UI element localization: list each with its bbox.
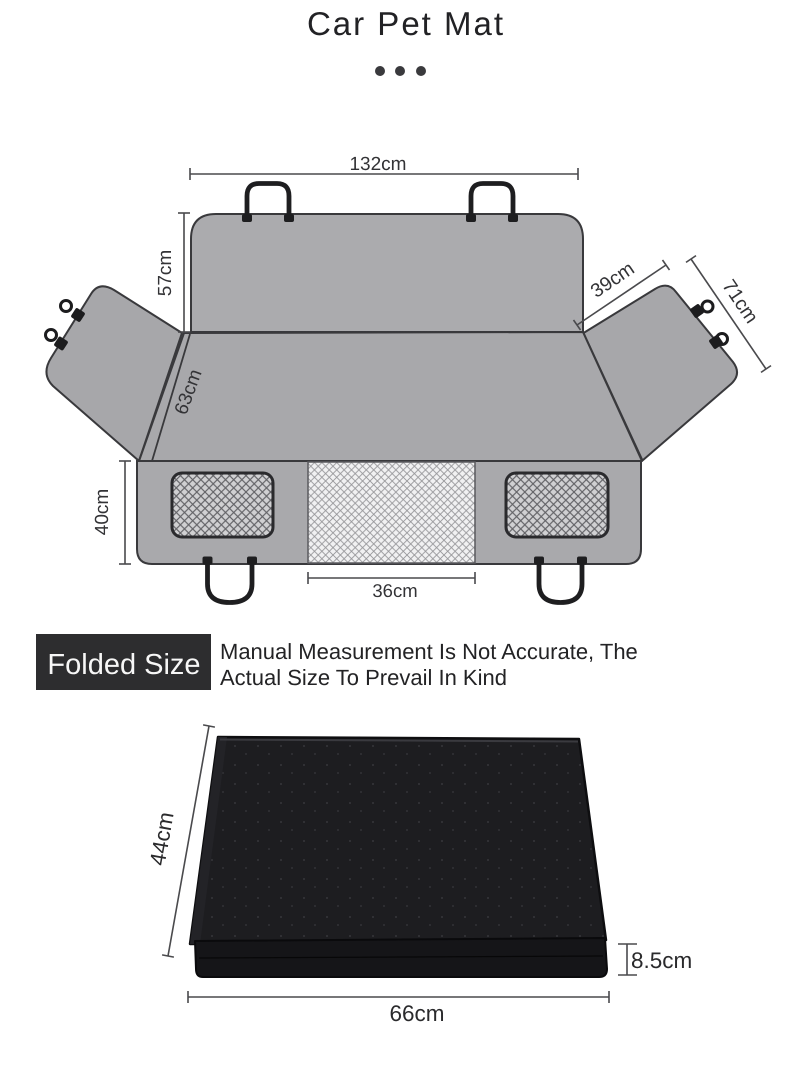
svg-text:66cm: 66cm — [389, 1001, 444, 1026]
svg-text:Folded Size: Folded Size — [47, 649, 200, 681]
svg-text:132cm: 132cm — [349, 154, 406, 175]
svg-text:Actual Size To Prevail In Kind: Actual Size To Prevail In Kind — [220, 665, 507, 690]
svg-text:8.5cm: 8.5cm — [631, 948, 692, 973]
svg-text:Car Pet Mat: Car Pet Mat — [307, 5, 505, 42]
svg-text:36cm: 36cm — [372, 580, 417, 601]
svg-text:57cm: 57cm — [155, 250, 176, 296]
svg-text:40cm: 40cm — [92, 489, 113, 535]
svg-text:Manual Measurement Is Not Accu: Manual Measurement Is Not Accurate, The — [220, 639, 638, 664]
